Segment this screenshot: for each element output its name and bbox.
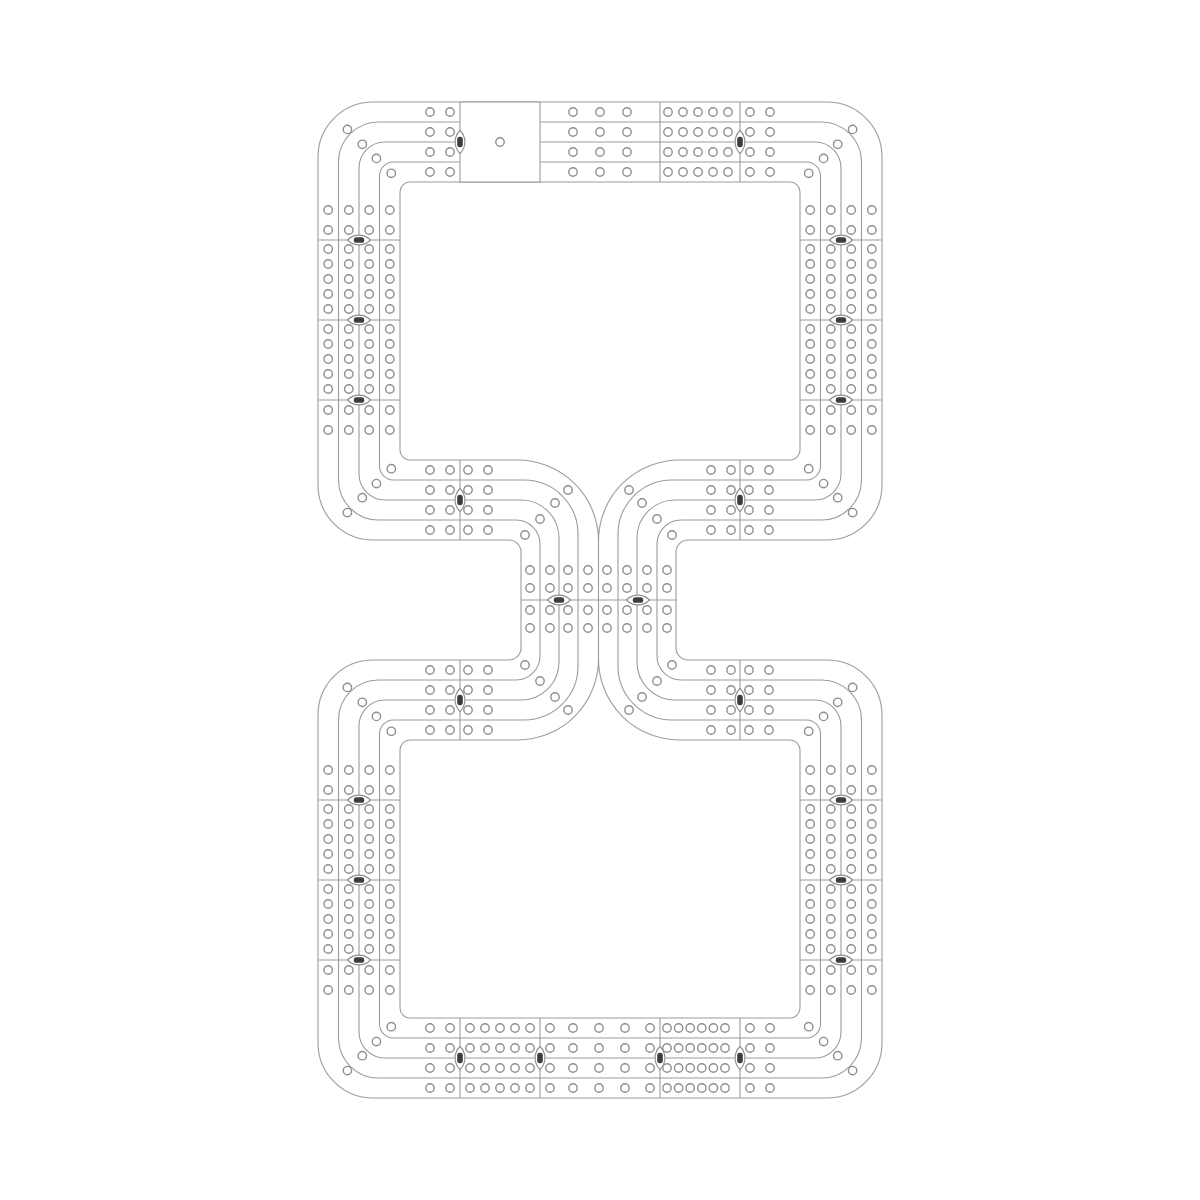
peg-hole — [464, 506, 472, 514]
peg-hole — [365, 226, 373, 234]
top-loop-lane-line — [339, 122, 862, 544]
peg-hole — [765, 666, 773, 674]
corner-peg-hole — [805, 1022, 813, 1030]
peg-hole — [464, 706, 472, 714]
peg-hole — [745, 466, 753, 474]
peg-hole — [324, 930, 332, 938]
peg-hole — [569, 128, 577, 136]
peg-hole — [324, 850, 332, 858]
peg-hole — [847, 226, 855, 234]
peg-hole — [386, 966, 394, 974]
corner-peg-hole — [536, 677, 544, 685]
peg-hole — [709, 1064, 717, 1072]
peg-hole — [827, 945, 835, 953]
corner-peg-hole — [819, 154, 827, 162]
peg-hole — [674, 1024, 682, 1032]
peg-hole — [386, 426, 394, 434]
peg-hole — [827, 406, 835, 414]
peg-hole — [386, 850, 394, 858]
peg-hole — [365, 915, 373, 923]
peg-hole — [546, 624, 554, 632]
peg-hole — [664, 128, 672, 136]
peg-hole — [569, 168, 577, 176]
peg-hole — [345, 805, 353, 813]
segment-marker-core — [836, 877, 846, 883]
corner-peg-hole — [668, 531, 676, 539]
segment-marker — [548, 595, 571, 605]
peg-hole — [324, 426, 332, 434]
peg-hole — [827, 885, 835, 893]
peg-hole — [526, 584, 534, 592]
peg-hole — [686, 1064, 694, 1072]
peg-hole — [847, 340, 855, 348]
peg-hole — [426, 706, 434, 714]
peg-hole — [546, 1084, 554, 1092]
peg-hole — [345, 835, 353, 843]
peg-hole — [569, 1044, 577, 1052]
peg-hole — [745, 706, 753, 714]
peg-hole — [868, 340, 876, 348]
peg-hole — [446, 1064, 454, 1072]
peg-hole — [511, 1084, 519, 1092]
corner-peg-hole — [343, 683, 351, 691]
peg-hole — [827, 305, 835, 313]
peg-hole — [386, 206, 394, 214]
peg-hole — [511, 1044, 519, 1052]
segment-marker — [830, 395, 853, 405]
peg-hole — [511, 1024, 519, 1032]
peg-hole — [365, 945, 373, 953]
segment-marker — [348, 875, 371, 885]
corner-peg-hole — [372, 479, 380, 487]
peg-hole — [345, 885, 353, 893]
peg-hole — [868, 986, 876, 994]
peg-hole — [868, 355, 876, 363]
peg-hole — [827, 820, 835, 828]
peg-hole — [365, 260, 373, 268]
peg-hole — [827, 245, 835, 253]
peg-hole — [345, 900, 353, 908]
peg-hole — [386, 406, 394, 414]
peg-hole — [847, 850, 855, 858]
peg-hole — [484, 686, 492, 694]
peg-hole — [345, 226, 353, 234]
peg-hole — [446, 706, 454, 714]
peg-hole — [724, 128, 732, 136]
peg-hole — [765, 726, 773, 734]
peg-hole — [324, 305, 332, 313]
peg-hole — [546, 566, 554, 574]
peg-hole — [686, 1044, 694, 1052]
peg-hole — [709, 128, 717, 136]
peg-hole — [324, 915, 332, 923]
peg-hole — [621, 1064, 629, 1072]
peg-hole — [727, 466, 735, 474]
peg-hole — [365, 786, 373, 794]
segment-marker — [348, 795, 371, 805]
peg-hole — [526, 566, 534, 574]
peg-hole — [847, 370, 855, 378]
peg-hole — [345, 340, 353, 348]
peg-hole — [707, 706, 715, 714]
corner-peg-hole — [819, 712, 827, 720]
corner-peg-hole — [805, 465, 813, 473]
segment-marker — [830, 875, 853, 885]
peg-hole — [806, 966, 814, 974]
cribbage-board-drawing-page — [0, 0, 1200, 1200]
peg-hole — [345, 305, 353, 313]
segment-marker-core — [354, 797, 364, 803]
peg-hole — [868, 275, 876, 283]
peg-hole — [868, 370, 876, 378]
peg-hole — [466, 1044, 474, 1052]
segment-marker — [830, 235, 853, 245]
peg-hole — [621, 1024, 629, 1032]
peg-hole — [386, 786, 394, 794]
peg-hole — [746, 148, 754, 156]
peg-hole — [595, 1044, 603, 1052]
peg-hole — [365, 900, 373, 908]
peg-hole — [746, 128, 754, 136]
peg-hole — [727, 486, 735, 494]
peg-hole — [806, 305, 814, 313]
peg-hole — [324, 945, 332, 953]
segment-marker-core — [457, 1053, 463, 1063]
peg-hole — [345, 370, 353, 378]
peg-hole — [827, 340, 835, 348]
peg-hole — [446, 506, 454, 514]
corner-peg-hole — [387, 727, 395, 735]
peg-hole — [847, 966, 855, 974]
segment-marker — [735, 1047, 745, 1070]
peg-hole — [569, 108, 577, 116]
peg-hole — [623, 128, 631, 136]
peg-hole — [766, 168, 774, 176]
peg-hole — [868, 766, 876, 774]
peg-hole — [324, 820, 332, 828]
peg-hole — [707, 506, 715, 514]
segment-marker-core — [836, 397, 846, 403]
peg-hole — [324, 260, 332, 268]
peg-hole — [827, 426, 835, 434]
peg-hole — [827, 260, 835, 268]
peg-hole — [707, 486, 715, 494]
peg-hole — [546, 606, 554, 614]
peg-hole — [569, 1064, 577, 1072]
peg-hole — [426, 1044, 434, 1052]
peg-hole — [595, 1024, 603, 1032]
peg-hole — [345, 355, 353, 363]
peg-hole — [806, 930, 814, 938]
peg-hole — [386, 245, 394, 253]
segment-marker — [735, 489, 745, 512]
peg-hole — [466, 1064, 474, 1072]
corner-peg-hole — [848, 1066, 856, 1074]
peg-hole — [386, 805, 394, 813]
top-loop-lane-line — [380, 162, 821, 534]
peg-hole — [643, 606, 651, 614]
peg-hole — [464, 486, 472, 494]
peg-hole — [868, 805, 876, 813]
peg-hole — [564, 606, 572, 614]
peg-hole — [603, 566, 611, 574]
peg-hole — [868, 820, 876, 828]
peg-hole — [526, 1044, 534, 1052]
peg-hole — [868, 885, 876, 893]
peg-hole — [484, 726, 492, 734]
segment-marker-core — [836, 237, 846, 243]
peg-hole — [446, 726, 454, 734]
peg-hole — [827, 850, 835, 858]
peg-hole — [345, 275, 353, 283]
peg-hole — [765, 506, 773, 514]
peg-hole — [679, 148, 687, 156]
peg-hole — [746, 168, 754, 176]
peg-hole — [707, 686, 715, 694]
peg-hole — [484, 466, 492, 474]
peg-hole — [827, 865, 835, 873]
peg-hole — [526, 1084, 534, 1092]
segment-marker-core — [537, 1053, 543, 1063]
segment-marker-core — [354, 397, 364, 403]
peg-hole — [526, 1024, 534, 1032]
peg-hole — [868, 786, 876, 794]
corner-peg-hole — [372, 712, 380, 720]
peg-hole — [466, 1024, 474, 1032]
peg-hole — [847, 885, 855, 893]
peg-hole — [766, 1024, 774, 1032]
peg-hole — [345, 325, 353, 333]
peg-hole — [386, 986, 394, 994]
peg-hole — [603, 606, 611, 614]
peg-hole — [721, 1024, 729, 1032]
peg-hole — [584, 624, 592, 632]
peg-hole — [426, 726, 434, 734]
peg-hole — [707, 466, 715, 474]
peg-hole — [663, 1064, 671, 1072]
peg-hole — [694, 128, 702, 136]
peg-hole — [663, 584, 671, 592]
peg-hole — [386, 945, 394, 953]
peg-hole — [365, 206, 373, 214]
peg-hole — [464, 666, 472, 674]
corner-peg-hole — [343, 1066, 351, 1074]
peg-hole — [806, 786, 814, 794]
peg-hole — [827, 226, 835, 234]
peg-hole — [345, 385, 353, 393]
peg-hole — [709, 148, 717, 156]
peg-hole — [745, 506, 753, 514]
corner-peg-hole — [387, 465, 395, 473]
segment-marker-core — [354, 237, 364, 243]
peg-hole — [847, 385, 855, 393]
peg-hole — [481, 1044, 489, 1052]
peg-hole — [806, 885, 814, 893]
peg-hole — [727, 526, 735, 534]
peg-hole — [623, 566, 631, 574]
peg-hole — [847, 275, 855, 283]
peg-hole — [345, 966, 353, 974]
peg-hole — [365, 275, 373, 283]
peg-hole — [426, 168, 434, 176]
corner-peg-hole — [819, 1037, 827, 1045]
peg-hole — [674, 1084, 682, 1092]
segment-marker-core — [657, 1053, 663, 1063]
peg-hole — [324, 370, 332, 378]
peg-hole — [746, 1084, 754, 1092]
peg-hole — [827, 966, 835, 974]
corner-peg-hole — [625, 706, 633, 714]
peg-hole — [365, 370, 373, 378]
peg-hole — [827, 275, 835, 283]
peg-hole — [746, 1064, 754, 1072]
segment-marker-core — [737, 137, 743, 147]
corner-peg-hole — [805, 727, 813, 735]
corner-peg-hole — [564, 486, 572, 494]
segment-marker-core — [737, 695, 743, 705]
peg-hole — [324, 966, 332, 974]
peg-hole — [621, 1044, 629, 1052]
peg-hole — [646, 1024, 654, 1032]
segment-marker-core — [836, 317, 846, 323]
peg-hole — [663, 566, 671, 574]
peg-hole — [345, 945, 353, 953]
peg-hole — [827, 986, 835, 994]
peg-hole — [663, 606, 671, 614]
peg-hole — [709, 108, 717, 116]
peg-hole — [827, 766, 835, 774]
peg-hole — [345, 986, 353, 994]
peg-hole — [663, 624, 671, 632]
figure-eight-cribbage-board-diagram — [0, 0, 1200, 1200]
peg-hole — [386, 355, 394, 363]
corner-peg-hole — [372, 1037, 380, 1045]
peg-hole — [324, 865, 332, 873]
segment-marker — [455, 689, 465, 712]
peg-hole — [868, 206, 876, 214]
peg-hole — [596, 128, 604, 136]
peg-hole — [868, 835, 876, 843]
corner-peg-hole — [564, 706, 572, 714]
peg-hole — [365, 355, 373, 363]
corner-peg-hole — [834, 1052, 842, 1060]
peg-hole — [643, 584, 651, 592]
peg-hole — [766, 128, 774, 136]
corner-peg-hole — [848, 508, 856, 516]
peg-hole — [847, 900, 855, 908]
peg-hole — [646, 1044, 654, 1052]
peg-hole — [806, 865, 814, 873]
peg-hole — [745, 486, 753, 494]
peg-hole — [484, 506, 492, 514]
peg-hole — [446, 148, 454, 156]
peg-hole — [698, 1064, 706, 1072]
peg-hole — [464, 466, 472, 474]
peg-hole — [679, 168, 687, 176]
peg-hole — [806, 355, 814, 363]
segment-marker — [735, 131, 745, 154]
peg-hole — [526, 1064, 534, 1072]
peg-hole — [746, 108, 754, 116]
peg-hole — [324, 986, 332, 994]
peg-hole — [324, 900, 332, 908]
corner-peg-hole — [343, 508, 351, 516]
peg-hole — [727, 706, 735, 714]
peg-hole — [806, 850, 814, 858]
peg-hole — [847, 986, 855, 994]
peg-hole — [324, 226, 332, 234]
peg-hole — [496, 1064, 504, 1072]
peg-hole — [847, 805, 855, 813]
peg-hole — [345, 820, 353, 828]
peg-hole — [868, 290, 876, 298]
peg-hole — [806, 226, 814, 234]
bottom-loop-lane-line — [339, 656, 862, 1078]
peg-hole — [511, 1064, 519, 1072]
peg-hole — [827, 355, 835, 363]
peg-hole — [386, 865, 394, 873]
corner-peg-hole — [358, 494, 366, 502]
corner-peg-hole — [521, 661, 529, 669]
peg-hole — [466, 1084, 474, 1092]
peg-hole — [679, 108, 687, 116]
segment-marker — [348, 395, 371, 405]
peg-hole — [464, 686, 472, 694]
peg-hole — [546, 1064, 554, 1072]
peg-hole — [694, 108, 702, 116]
peg-hole — [686, 1024, 694, 1032]
peg-hole — [746, 1044, 754, 1052]
peg-hole — [365, 245, 373, 253]
peg-hole — [324, 786, 332, 794]
segment-marker-core — [836, 797, 846, 803]
peg-hole — [765, 486, 773, 494]
peg-hole — [386, 915, 394, 923]
corner-peg-hole — [848, 683, 856, 691]
peg-hole — [806, 325, 814, 333]
corner-peg-hole — [834, 494, 842, 502]
peg-hole — [868, 915, 876, 923]
peg-hole — [827, 325, 835, 333]
peg-hole — [446, 686, 454, 694]
peg-hole — [446, 168, 454, 176]
peg-hole — [806, 275, 814, 283]
peg-hole — [664, 148, 672, 156]
peg-hole — [827, 290, 835, 298]
peg-hole — [546, 1044, 554, 1052]
segment-marker-core — [354, 957, 364, 963]
bottom-loop-lane-line — [359, 662, 841, 1058]
corner-peg-hole — [358, 1052, 366, 1060]
peg-hole — [707, 526, 715, 534]
peg-hole — [345, 206, 353, 214]
peg-hole — [484, 486, 492, 494]
peg-hole — [806, 915, 814, 923]
peg-hole — [365, 930, 373, 938]
group-divider-layer — [318, 102, 882, 1098]
peg-hole — [868, 850, 876, 858]
segment-marker — [627, 595, 650, 605]
peg-hole — [694, 148, 702, 156]
peg-hole — [806, 260, 814, 268]
peg-hole — [727, 666, 735, 674]
peg-hole — [765, 526, 773, 534]
peg-hole — [765, 466, 773, 474]
peg-hole — [847, 835, 855, 843]
peg-hole — [426, 506, 434, 514]
peg-hole — [868, 945, 876, 953]
peg-hole — [806, 426, 814, 434]
